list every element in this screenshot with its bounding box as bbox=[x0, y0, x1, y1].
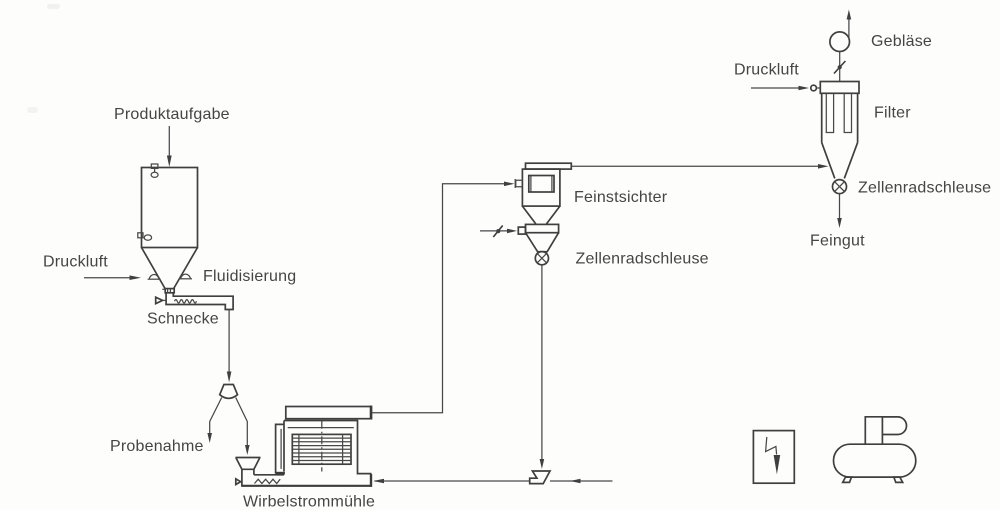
svg-text:Schnecke: Schnecke bbox=[147, 311, 219, 328]
svg-text:Fluidisierung: Fluidisierung bbox=[203, 268, 296, 285]
svg-text:Filter: Filter bbox=[874, 105, 911, 122]
svg-text:Gebläse: Gebläse bbox=[871, 33, 932, 50]
svg-text:Feinstsichter: Feinstsichter bbox=[574, 189, 668, 206]
svg-text:Druckluft: Druckluft bbox=[43, 254, 108, 271]
svg-text:Feingut: Feingut bbox=[810, 233, 865, 250]
svg-text:Produktaufgabe: Produktaufgabe bbox=[114, 106, 230, 123]
svg-text:Zellenradschleuse: Zellenradschleuse bbox=[576, 251, 709, 268]
svg-text:Zellenradschleuse: Zellenradschleuse bbox=[858, 180, 991, 197]
svg-text:Probenahme: Probenahme bbox=[110, 438, 204, 455]
svg-text:Wirbelstrommühle: Wirbelstrommühle bbox=[243, 494, 375, 510]
svg-text:Druckluft: Druckluft bbox=[734, 62, 799, 79]
